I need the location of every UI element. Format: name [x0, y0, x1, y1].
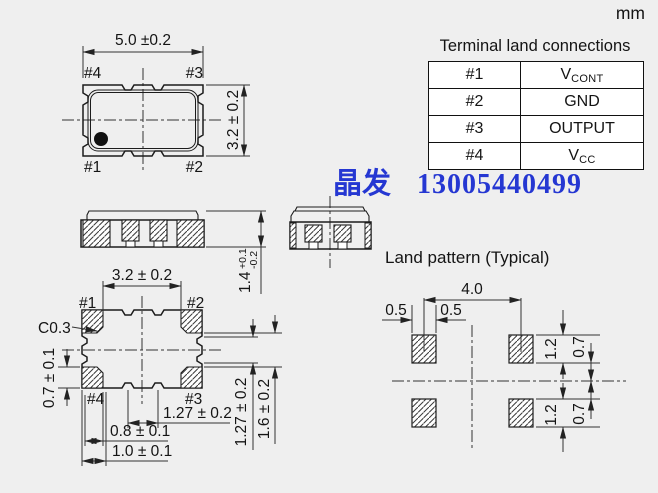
- land-pad: [412, 399, 436, 427]
- terminal-pad: [305, 225, 322, 242]
- castellation-groove: [309, 242, 318, 249]
- dim-pad-height-label: 0.7 ± 0.1: [41, 348, 58, 408]
- land-pattern-view: 4.0 0.5 0.5 1.2 0.7 1.2 0.7: [382, 281, 626, 452]
- dim-gap-bottom-label: 0.7: [571, 403, 588, 425]
- lid-profile: [87, 211, 198, 220]
- corner-pad-4: [82, 367, 103, 388]
- edge-terminal: [365, 223, 371, 248]
- dim-right-outer-label: 1.6 ± 0.2: [256, 379, 273, 439]
- watermark-phone-number: 13005440499: [417, 171, 582, 199]
- pin-function: OUTPUT: [521, 116, 644, 143]
- pin-function: GND: [521, 89, 644, 116]
- pin1-marker-dot: [94, 132, 108, 146]
- pin-function: VCC: [521, 143, 644, 170]
- pin-function-sub: CONT: [571, 73, 603, 85]
- package-top-view: 5.0 ±0.2 3.2 ± 0.2 #4 #3 #1 #2: [62, 32, 250, 176]
- castellation-groove: [126, 241, 135, 247]
- dim-pad-height-bottom-label: 1.2: [543, 404, 560, 426]
- terminal-pad: [334, 225, 351, 242]
- pin-function-main: OUTPUT: [549, 120, 615, 137]
- corner-pad-2: [181, 310, 202, 333]
- pin-function-main: GND: [564, 93, 600, 110]
- land-pad: [509, 399, 533, 427]
- dim-half-left-label: 0.5: [385, 302, 407, 319]
- pin-function-main: V: [560, 66, 571, 83]
- terminal-pad: [83, 220, 110, 247]
- pin-number: #3: [429, 116, 521, 143]
- edge-terminal: [290, 223, 296, 248]
- pin-function: VCONT: [521, 62, 644, 89]
- terminal-pad: [150, 220, 167, 241]
- table-row: #2 GND: [429, 89, 644, 116]
- castellation-groove: [154, 241, 163, 247]
- dim-thickness-label: 1.4 +0.1 -0.2: [233, 244, 260, 293]
- dim-pitch-label: 1.27 ± 0.2: [163, 405, 232, 422]
- pin-label-3: #3: [186, 65, 203, 82]
- dim-height-label: 3.2 ± 0.2: [225, 90, 242, 150]
- terminal-pad: [177, 220, 204, 247]
- dim-10-label: 1.0 ± 0.1: [112, 443, 172, 460]
- dim-gap-top-label: 0.7: [571, 336, 588, 358]
- pin-label-2: #2: [187, 295, 204, 312]
- terminal-land-connections-table: #1 VCONT #2 GND #3 OUTPUT #4 VCC: [428, 61, 644, 170]
- dim-pad-pitch-label: 4.0: [461, 281, 483, 298]
- datasheet-drawing-page: 5.0 ±0.2 3.2 ± 0.2 #4 #3 #1 #2: [0, 0, 658, 493]
- watermark-chinese-text: 晶发: [333, 170, 391, 199]
- package-side-view: 1.4 +0.1 -0.2: [81, 211, 266, 294]
- dim-pad-height-top-label: 1.2: [543, 338, 560, 360]
- pin-label-1: #1: [79, 295, 96, 312]
- table-row: #4 VCC: [429, 143, 644, 170]
- dim-half-right-label: 0.5: [440, 302, 462, 319]
- corner-pad-3: [181, 367, 202, 388]
- dim-right-inner-label: 1.27 ± 0.2: [233, 378, 250, 447]
- table-row: #3 OUTPUT: [429, 116, 644, 143]
- land-pattern-title: Land pattern (Typical): [385, 248, 549, 268]
- pin-label-2: #2: [186, 159, 203, 176]
- watermark: 晶发 13005440499: [333, 170, 582, 199]
- table-title: Terminal land connections: [425, 37, 645, 56]
- terminal-pad: [122, 220, 139, 241]
- pin-function-main: V: [568, 147, 579, 164]
- unit-label: mm: [603, 3, 645, 24]
- pin-label-4: #4: [84, 65, 102, 82]
- dim-08-label: 0.8 ± 0.1: [110, 423, 170, 440]
- dim-terminal-span-label: 3.2 ± 0.2: [112, 267, 172, 284]
- dim-width-label: 5.0 ±0.2: [115, 32, 171, 49]
- pin-number: #2: [429, 89, 521, 116]
- package-end-view: [290, 196, 371, 268]
- pin-function-sub: CC: [579, 154, 596, 166]
- pin-label-4: #4: [87, 391, 105, 408]
- chamfer-label: C0.3: [38, 320, 71, 337]
- table-row: #1 VCONT: [429, 62, 644, 89]
- pin-label-1: #1: [84, 159, 101, 176]
- package-bottom-view: 3.2 ± 0.2 #1 #2 #4 #3 C0.3 0.7 ± 0.1 1.2…: [38, 267, 282, 466]
- pin-number: #1: [429, 62, 521, 89]
- castellation-groove: [338, 242, 347, 249]
- pin-number: #4: [429, 143, 521, 170]
